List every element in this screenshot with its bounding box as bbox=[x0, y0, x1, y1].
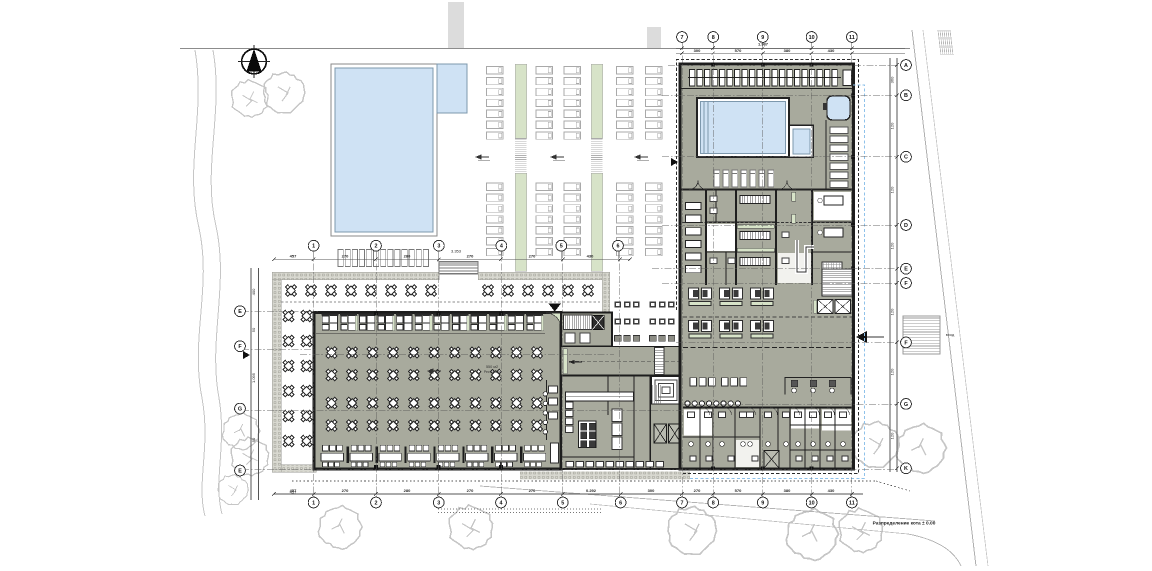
svg-text:400: 400 bbox=[251, 288, 256, 295]
svg-text:120: 120 bbox=[890, 368, 895, 375]
svg-text:550 м2: 550 м2 bbox=[486, 365, 498, 369]
svg-text:50: 50 bbox=[251, 437, 256, 442]
svg-text:3: 3 bbox=[437, 244, 440, 250]
svg-text:270: 270 bbox=[529, 254, 536, 259]
svg-text:570: 570 bbox=[735, 488, 742, 493]
svg-text:120: 120 bbox=[890, 308, 895, 315]
svg-text:457: 457 bbox=[290, 254, 297, 259]
svg-text:11: 11 bbox=[849, 500, 855, 506]
svg-text:430: 430 bbox=[587, 254, 594, 259]
svg-text:7: 7 bbox=[681, 35, 684, 41]
svg-text:A: A bbox=[904, 63, 908, 69]
svg-text:9: 9 bbox=[761, 500, 764, 506]
svg-text:C: C bbox=[904, 155, 908, 161]
svg-text:10: 10 bbox=[809, 500, 815, 506]
svg-text:B: B bbox=[904, 93, 908, 99]
svg-text:вход: вход bbox=[946, 332, 955, 337]
svg-text:Разпределение кота ± 0.00: Разпределение кота ± 0.00 bbox=[873, 521, 936, 527]
svg-text:9: 9 bbox=[761, 35, 764, 41]
svg-text:280: 280 bbox=[404, 254, 411, 259]
svg-text:270: 270 bbox=[467, 488, 474, 493]
svg-text:120: 120 bbox=[890, 186, 895, 193]
svg-text:1: 1 bbox=[312, 500, 315, 506]
svg-text:380: 380 bbox=[784, 488, 791, 493]
svg-text:380: 380 bbox=[784, 48, 791, 53]
svg-text:270: 270 bbox=[694, 488, 701, 493]
svg-text:1.095: 1.095 bbox=[251, 372, 256, 383]
svg-text:570: 570 bbox=[735, 48, 742, 53]
svg-text:3.353: 3.353 bbox=[451, 249, 462, 254]
svg-text:457: 457 bbox=[290, 489, 297, 494]
svg-text:11: 11 bbox=[849, 35, 855, 41]
svg-text:2: 2 bbox=[375, 500, 378, 506]
svg-text:5: 5 bbox=[560, 244, 563, 250]
svg-text:E: E bbox=[238, 468, 242, 474]
svg-text:270: 270 bbox=[529, 488, 536, 493]
svg-text:6: 6 bbox=[617, 244, 620, 250]
svg-text:280: 280 bbox=[404, 488, 411, 493]
svg-text:1: 1 bbox=[312, 244, 315, 250]
svg-text:8: 8 bbox=[712, 35, 715, 41]
svg-text:6: 6 bbox=[619, 500, 622, 506]
svg-text:120: 120 bbox=[890, 432, 895, 439]
svg-text:430: 430 bbox=[828, 48, 835, 53]
svg-text:5: 5 bbox=[561, 500, 564, 506]
svg-text:4: 4 bbox=[500, 500, 503, 506]
svg-text:1.987: 1.987 bbox=[758, 42, 769, 47]
svg-text:360: 360 bbox=[890, 76, 895, 83]
svg-text:430: 430 bbox=[828, 488, 835, 493]
svg-text:300: 300 bbox=[648, 488, 655, 493]
svg-text:E: E bbox=[904, 267, 908, 273]
svg-text:7: 7 bbox=[681, 500, 684, 506]
svg-text:270: 270 bbox=[342, 254, 349, 259]
svg-text:120: 120 bbox=[890, 122, 895, 129]
svg-text:G: G bbox=[904, 402, 908, 408]
svg-text:120: 120 bbox=[890, 242, 895, 249]
svg-text:K: K bbox=[904, 466, 908, 472]
svg-text:300: 300 bbox=[694, 48, 701, 53]
svg-text:8: 8 bbox=[712, 500, 715, 506]
svg-text:10: 10 bbox=[809, 35, 815, 41]
svg-text:G: G bbox=[238, 407, 242, 413]
svg-text:50: 50 bbox=[251, 327, 256, 332]
svg-text:270: 270 bbox=[467, 254, 474, 259]
svg-text:Ресторант: Ресторант bbox=[484, 370, 501, 374]
svg-text:0.292: 0.292 bbox=[586, 488, 597, 493]
svg-text:D: D bbox=[904, 223, 908, 229]
svg-text:4: 4 bbox=[500, 244, 503, 250]
svg-text:2: 2 bbox=[375, 244, 378, 250]
svg-text:E: E bbox=[238, 309, 242, 315]
svg-text:270: 270 bbox=[342, 488, 349, 493]
svg-text:3: 3 bbox=[437, 500, 440, 506]
